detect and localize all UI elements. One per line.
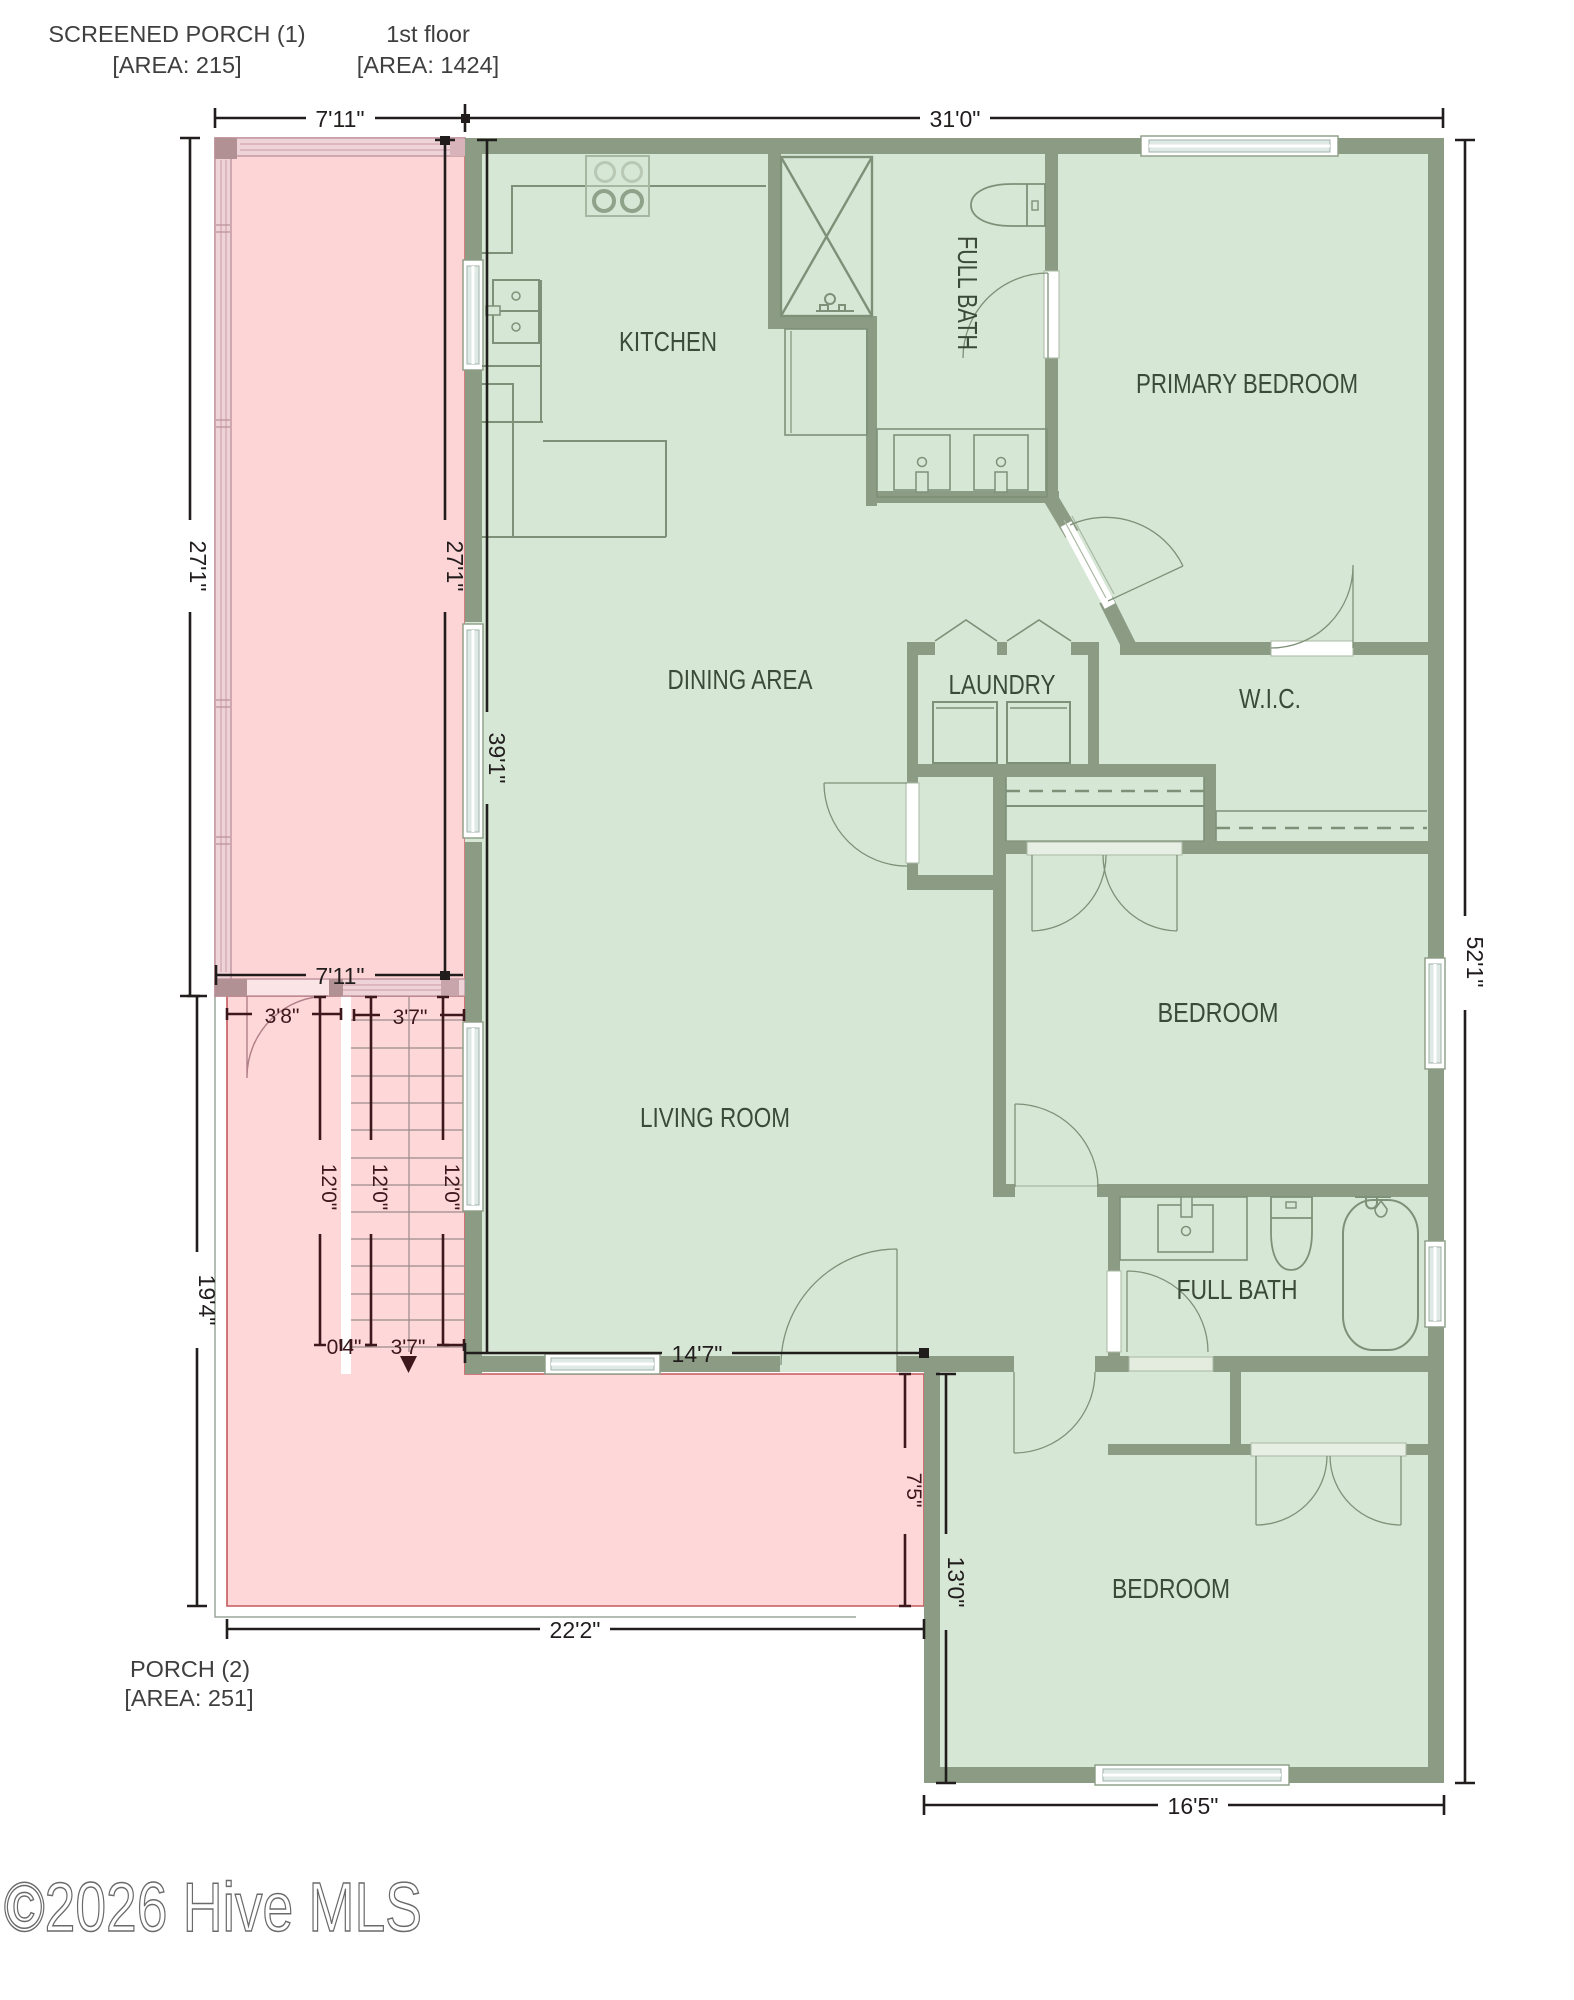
svg-text:3'7": 3'7": [393, 1006, 428, 1029]
svg-text:LAUNDRY: LAUNDRY: [949, 669, 1056, 700]
svg-text:19'4": 19'4": [194, 1275, 220, 1326]
svg-text:13'0": 13'0": [943, 1557, 969, 1608]
svg-text:1st floor: 1st floor: [386, 21, 470, 47]
svg-text:LIVING ROOM: LIVING ROOM: [640, 1102, 790, 1133]
svg-text:DINING AREA: DINING AREA: [668, 664, 813, 695]
svg-text:22'2": 22'2": [550, 1617, 601, 1643]
svg-text:W.I.C.: W.I.C.: [1239, 683, 1301, 714]
svg-text:BEDROOM: BEDROOM: [1158, 997, 1279, 1028]
svg-text:FULL BATH: FULL BATH: [1177, 1274, 1298, 1305]
svg-text:PRIMARY BEDROOM: PRIMARY BEDROOM: [1136, 368, 1358, 399]
svg-text:SCREENED PORCH (1): SCREENED PORCH (1): [48, 21, 305, 47]
svg-text:31'0": 31'0": [930, 106, 981, 132]
svg-text:7'5": 7'5": [902, 1473, 925, 1508]
svg-text:©2026 Hive MLS: ©2026 Hive MLS: [4, 1868, 422, 1946]
svg-text:3'8": 3'8": [265, 1005, 300, 1028]
svg-text:16'5": 16'5": [1168, 1793, 1219, 1819]
svg-text:27'1": 27'1": [442, 541, 468, 592]
svg-text:FULL BATH: FULL BATH: [952, 236, 983, 350]
svg-text:0'4": 0'4": [327, 1336, 362, 1359]
svg-text:7'11": 7'11": [315, 963, 364, 989]
svg-text:14'7": 14'7": [672, 1341, 723, 1367]
svg-text:[AREA: 215]: [AREA: 215]: [112, 52, 241, 78]
svg-text:BEDROOM: BEDROOM: [1112, 1573, 1230, 1604]
svg-text:3'7": 3'7": [391, 1336, 426, 1359]
svg-text:39'1": 39'1": [484, 733, 510, 784]
svg-text:KITCHEN: KITCHEN: [619, 326, 717, 357]
svg-text:12'0": 12'0": [368, 1164, 391, 1211]
svg-text:7'11": 7'11": [315, 106, 364, 132]
svg-text:52'1": 52'1": [1462, 937, 1488, 988]
svg-text:[AREA: 251]: [AREA: 251]: [124, 1685, 253, 1711]
svg-text:[AREA: 1424]: [AREA: 1424]: [357, 52, 499, 78]
svg-text:12'0": 12'0": [317, 1164, 340, 1211]
svg-text:12'0": 12'0": [440, 1164, 463, 1211]
svg-text:27'1": 27'1": [185, 541, 211, 592]
svg-text:PORCH (2): PORCH (2): [130, 1656, 250, 1682]
